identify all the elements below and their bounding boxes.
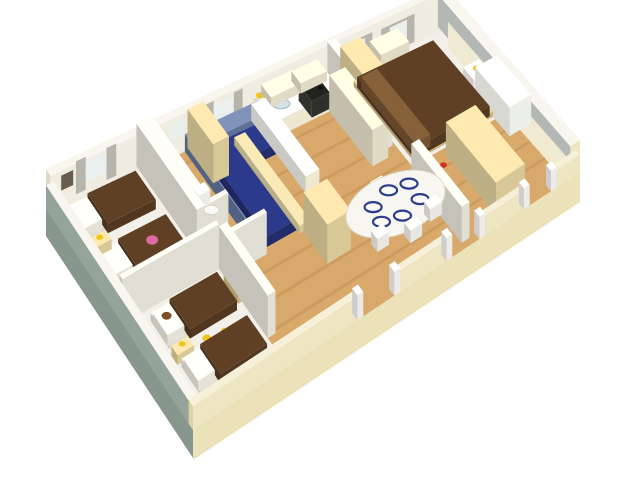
teddy-bear	[162, 312, 172, 320]
kids-b-lamp	[179, 341, 186, 346]
curtain-kids-a-left	[76, 157, 86, 194]
door-jamb	[474, 207, 485, 239]
door-jamb	[519, 179, 530, 210]
floorplan-3d-render	[0, 0, 640, 481]
door-jamb	[389, 261, 400, 296]
door-jamb	[441, 228, 452, 261]
door-jamb	[546, 161, 557, 191]
dinner-plate	[380, 185, 397, 195]
dinner-plate	[401, 179, 418, 189]
curtain-kids-a-right	[107, 144, 117, 181]
toy-plane	[146, 235, 158, 244]
floorplan-svg	[0, 0, 640, 481]
dinner-plate	[394, 211, 411, 221]
kids-a-lamp	[96, 235, 103, 240]
toilet-bowl	[204, 205, 219, 215]
dinner-plate	[365, 202, 382, 212]
stove-burner	[318, 86, 322, 89]
door-jamb	[352, 285, 363, 321]
